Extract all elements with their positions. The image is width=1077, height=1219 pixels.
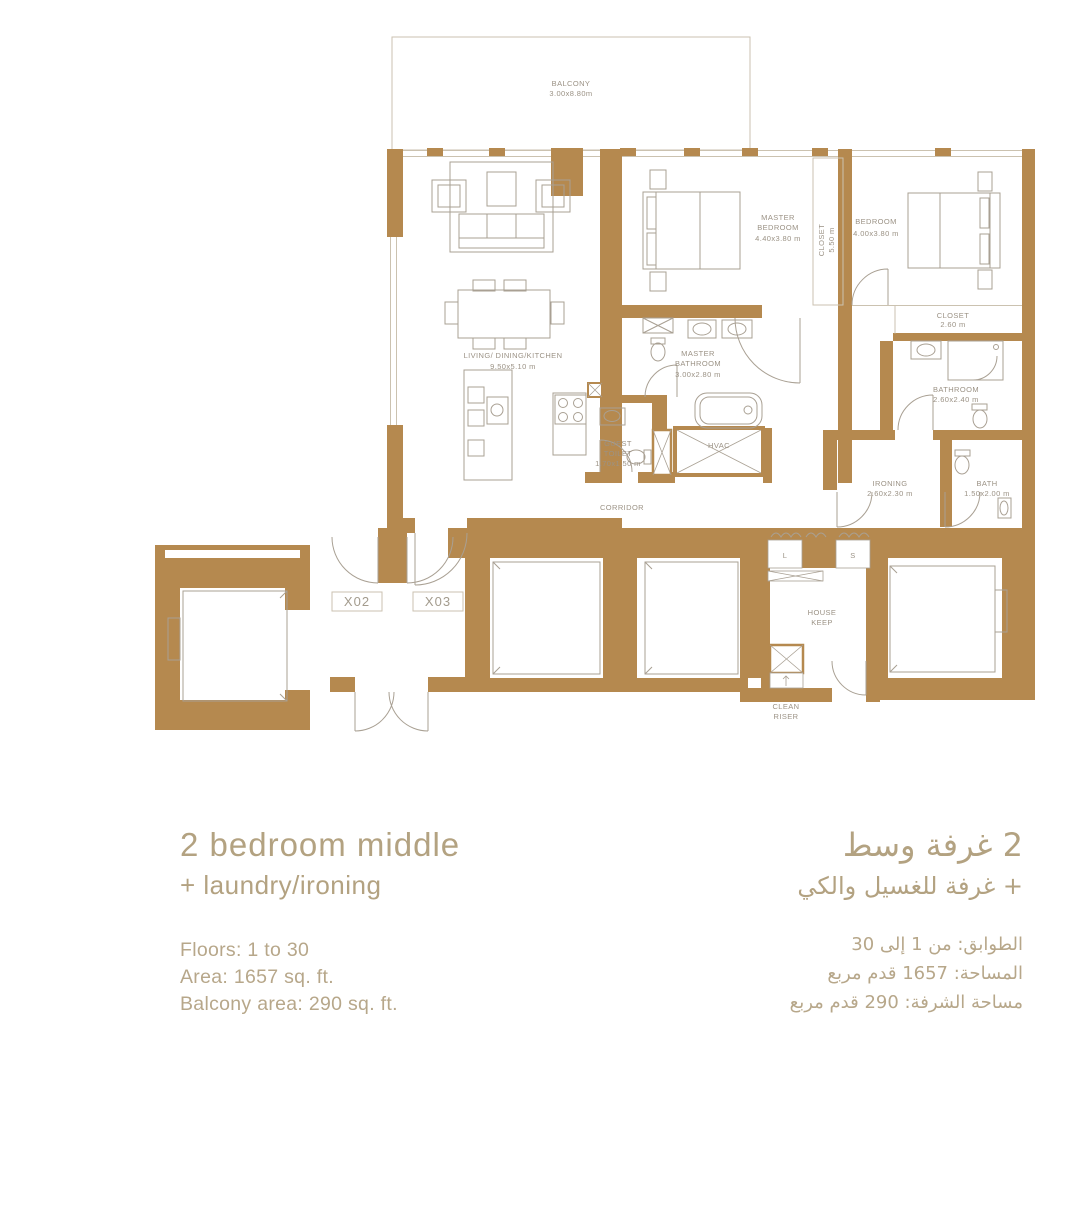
clean-riser-label-2: RISER <box>774 712 799 721</box>
house-keep-label-1: HOUSE <box>808 608 837 617</box>
unit-x02-label: X02 <box>344 594 370 609</box>
master-bedroom-label-2: BEDROOM <box>757 223 799 232</box>
bedroom-label: BEDROOM <box>855 217 897 226</box>
area-en: Area: 1657 sq. ft. <box>180 964 600 991</box>
clean-riser-label-1: CLEAN <box>772 702 799 711</box>
corridor-label: CORRIDOR <box>600 503 644 512</box>
master-bedroom-size: 4.40x3.80 m <box>755 234 801 243</box>
bedroom-furniture <box>908 172 1000 289</box>
master-bathroom-label-2: BATHROOM <box>675 359 721 368</box>
master-bedroom-furniture <box>643 170 740 291</box>
master-bedroom-label-1: MASTER <box>761 213 795 222</box>
dining-furniture <box>445 280 564 349</box>
bedroom-size: 4.00x3.80 m <box>853 229 899 238</box>
floors-en: Floors: 1 to 30 <box>180 937 600 964</box>
bedroom-closet-label: CLOSET <box>937 311 969 320</box>
louver-slot <box>165 550 300 558</box>
bathroom-label: BATHROOM <box>933 385 979 394</box>
bath-size: 1.50x2.00 m <box>964 489 1010 498</box>
master-closet-size: 5.50 m <box>827 227 836 252</box>
hvac-label: HVAC <box>708 441 730 450</box>
master-bathroom-label-1: MASTER <box>681 349 715 358</box>
info-arabic: 2 غرفة وسط + غرفة للغسيل والكي الطوابق: … <box>603 826 1023 1017</box>
balcony-area-en: Balcony area: 290 sq. ft. <box>180 991 600 1018</box>
guest-toilet-label-1: GUEST <box>604 439 632 448</box>
area-ar: المساحة: 1657 قدم مربع <box>603 959 1023 988</box>
living-label: LIVING/ DINING/KITCHEN <box>464 351 563 360</box>
unit-title-ar: 2 غرفة وسط <box>603 826 1023 864</box>
floor-plan: X02 X03 BALCONY 3.00x8.80m LIVING/ DININ… <box>0 0 1077 1219</box>
living-room-furniture <box>432 162 570 252</box>
kitchen-furniture <box>464 370 586 480</box>
info-english: 2 bedroom middle + laundry/ironing Floor… <box>180 826 600 1018</box>
unit-subtitle-en: + laundry/ironing <box>180 870 600 901</box>
unit-title-en: 2 bedroom middle <box>180 826 600 864</box>
balcony-size: 3.00x8.80m <box>549 89 592 98</box>
master-bathroom-size: 3.00x2.80 m <box>675 370 721 379</box>
ironing-label: IRONING <box>873 479 908 488</box>
floors-ar: الطوابق: من 1 إلى 30 <box>603 930 1023 959</box>
laundry-l-label: L <box>783 551 788 560</box>
unit-subtitle-ar: + غرفة للغسيل والكي <box>603 872 1023 900</box>
master-closet-label: CLOSET <box>817 224 826 256</box>
bathroom-size: 2.60x2.40 m <box>933 395 979 404</box>
balcony-label: BALCONY <box>552 79 591 88</box>
unit-x03-label: X03 <box>425 594 451 609</box>
living-size: 9.50x5.10 m <box>490 362 536 371</box>
bedroom-closet-size: 2.60 m <box>940 320 965 329</box>
laundry-s-label: S <box>850 551 855 560</box>
ironing-size: 2.60x2.30 m <box>867 489 913 498</box>
house-keep-label-2: KEEP <box>811 618 833 627</box>
unit-labels: X02 X03 <box>332 592 463 611</box>
floor-plan-page: X02 X03 BALCONY 3.00x8.80m LIVING/ DININ… <box>0 0 1077 1219</box>
room-labels: BALCONY 3.00x8.80m LIVING/ DINING/KITCHE… <box>464 79 1010 721</box>
guest-toilet-label-2: TOILET <box>604 449 633 458</box>
guest-toilet-size: 1.70x1.50 m <box>595 459 641 468</box>
bath-label: BATH <box>976 479 997 488</box>
balcony-area-ar: مساحة الشرفة: 290 قدم مربع <box>603 988 1023 1017</box>
